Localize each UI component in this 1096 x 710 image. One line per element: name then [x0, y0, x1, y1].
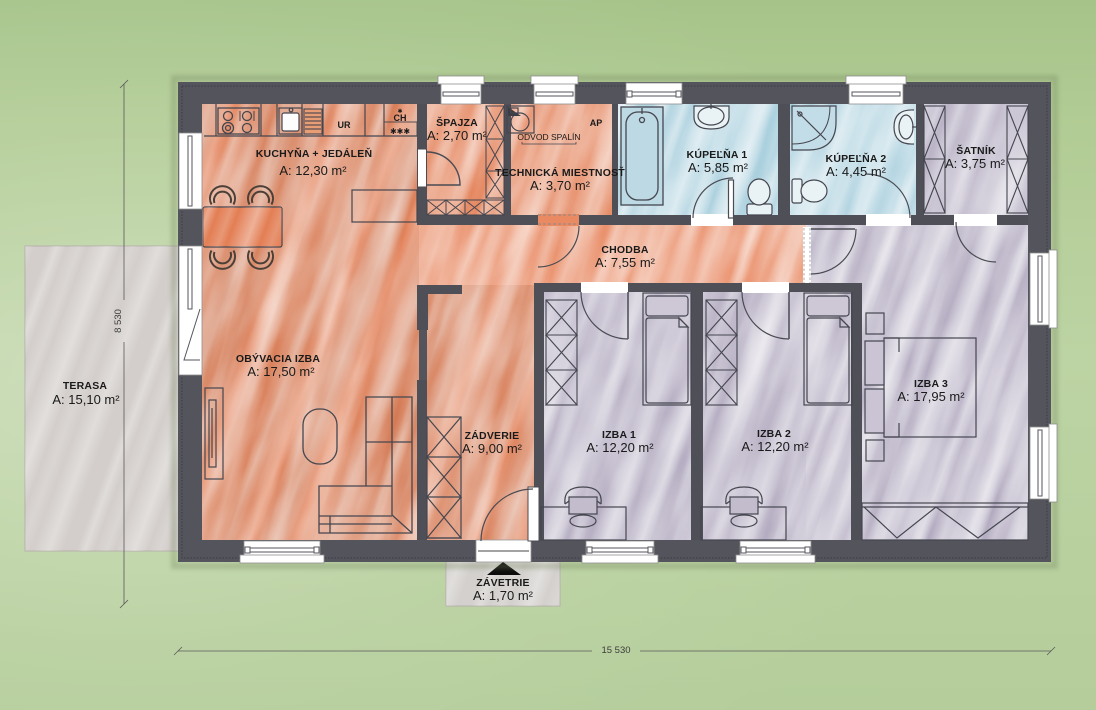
svg-text:A: 17,95 m²: A: 17,95 m²	[897, 389, 965, 404]
svg-text:A: 12,30 m²: A: 12,30 m²	[279, 163, 347, 178]
svg-text:TERASA: TERASA	[63, 380, 108, 392]
svg-text:A: 7,55 m²: A: 7,55 m²	[595, 255, 656, 270]
svg-text:✱✱✱: ✱✱✱	[390, 127, 410, 136]
svg-text:A: 3,70 m²: A: 3,70 m²	[530, 178, 591, 193]
svg-text:ODVOD SPALÍN: ODVOD SPALÍN	[517, 132, 580, 142]
svg-text:A: 5,85 m²: A: 5,85 m²	[688, 160, 749, 175]
svg-text:UR: UR	[338, 120, 351, 130]
svg-text:AP: AP	[590, 118, 603, 128]
svg-text:CH: CH	[394, 113, 407, 123]
svg-text:A: 3,75 m²: A: 3,75 m²	[945, 156, 1006, 171]
svg-text:A: 17,50 m²: A: 17,50 m²	[247, 364, 315, 379]
svg-text:A: 2,70 m²: A: 2,70 m²	[427, 128, 488, 143]
svg-text:A: 12,20 m²: A: 12,20 m²	[741, 439, 809, 454]
svg-text:A: 9,00 m²: A: 9,00 m²	[462, 441, 523, 456]
svg-text:KUCHYŇA + JEDÁLEŇ: KUCHYŇA + JEDÁLEŇ	[256, 147, 373, 160]
svg-text:A: 12,20 m²: A: 12,20 m²	[586, 440, 654, 455]
svg-text:A: 15,10 m²: A: 15,10 m²	[52, 392, 120, 407]
svg-text:15 530: 15 530	[601, 645, 630, 656]
svg-text:8 530: 8 530	[113, 309, 124, 333]
svg-text:A: 1,70 m²: A: 1,70 m²	[473, 588, 534, 603]
svg-text:A: 4,45 m²: A: 4,45 m²	[826, 164, 887, 179]
